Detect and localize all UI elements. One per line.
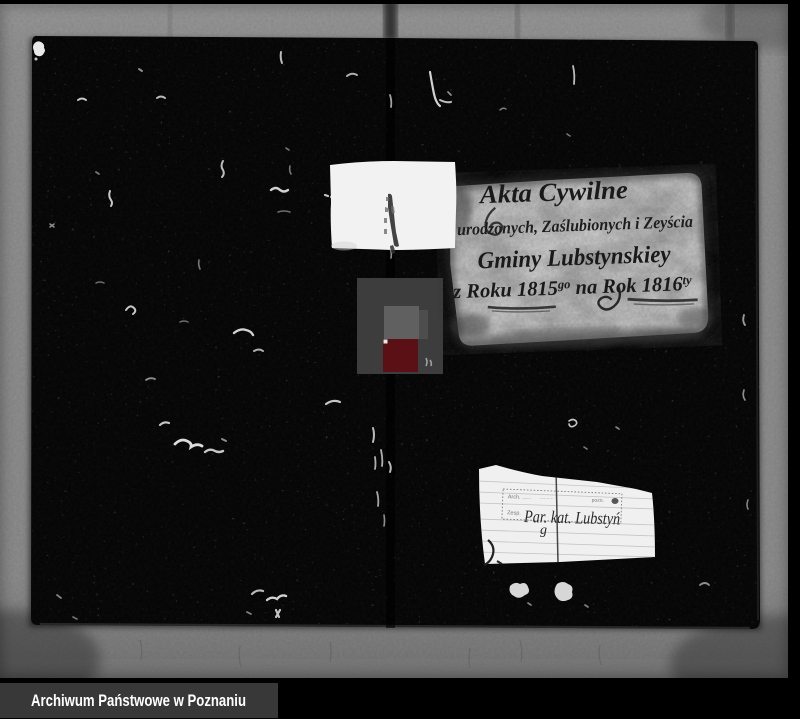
- svg-text:Archiwum Państwowe w Poznaniu: Archiwum Państwowe w Poznaniu: [31, 692, 246, 710]
- svg-text:pozn.: pozn.: [592, 498, 604, 504]
- svg-text:Zesp.: Zesp.: [507, 510, 521, 517]
- svg-text:..........: ..........: [540, 494, 554, 501]
- svg-text:Par. kat. Lubstyń: Par. kat. Lubstyń: [523, 506, 620, 529]
- svg-text:Arch. ......: Arch. ......: [508, 494, 532, 501]
- svg-text:g: g: [540, 523, 547, 538]
